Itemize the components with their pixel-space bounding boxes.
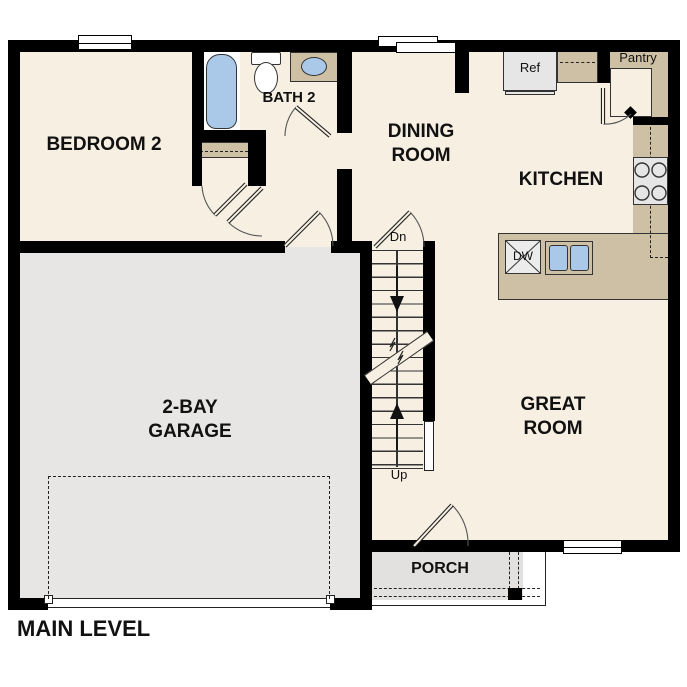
wall-bath-dining-lower — [337, 169, 352, 241]
wall-garage-top-left — [8, 241, 285, 253]
kitchen-sink-basin-right — [570, 245, 589, 271]
window-greatroom — [563, 540, 622, 554]
plan-title: MAIN LEVEL — [17, 615, 237, 643]
stairs-down-label: Dn — [383, 229, 413, 244]
pantry-right-shelf — [652, 68, 668, 117]
ref-label: Ref — [503, 60, 557, 75]
wall-pantry-bottom — [633, 117, 680, 125]
window-bedroom — [78, 35, 132, 50]
wall-ref-pantry-stub — [598, 40, 610, 83]
kitchen-label: KITCHEN — [501, 168, 621, 192]
porch-label: PORCH — [404, 559, 476, 579]
wall-garage-bottom-right — [330, 598, 372, 610]
porch-post — [508, 588, 522, 600]
closet-shelf — [198, 142, 250, 158]
kitchen-sink-basin-left — [549, 245, 568, 271]
wall-bath-dining-upper — [337, 40, 352, 133]
stove — [633, 157, 668, 205]
vanity-sink — [301, 57, 327, 76]
stair-railing — [424, 421, 434, 471]
wall-closet-left — [192, 142, 202, 186]
closet-rod-dash — [200, 151, 248, 152]
wall-bedroom-bath — [192, 40, 204, 142]
wall-garage-right — [360, 241, 372, 610]
refrigerator-handle — [505, 91, 555, 95]
wall-dining-kitchen-stub — [455, 40, 469, 93]
cabinet-door-dash — [560, 62, 595, 63]
wall-garage-bottom-left — [8, 598, 48, 610]
window-dining-b — [396, 42, 456, 53]
upper-cabinet-dash-end — [650, 257, 668, 258]
wall-left — [8, 40, 20, 610]
bath2-label: BATH 2 — [248, 89, 330, 108]
porch-dash-right-1 — [509, 552, 510, 589]
porch-dash-right-2 — [518, 552, 519, 589]
garage-door-dashed-area — [48, 476, 330, 599]
bedroom2-label: BEDROOM 2 — [29, 133, 179, 157]
stairs-up-label: Up — [384, 467, 414, 482]
pantry-label: Pantry — [610, 50, 666, 65]
floor-plan: BEDROOM 2 BATH 2 DINING ROOM KITCHEN GRE… — [0, 0, 687, 687]
wall-tubniche-bottom — [192, 130, 252, 142]
garage-door-sill — [48, 598, 330, 608]
garage-label: 2-BAY GARAGE — [135, 396, 245, 444]
wall-closet-right — [248, 130, 266, 186]
dining-label: DINING ROOM — [376, 120, 466, 168]
greatroom-label: GREAT ROOM — [508, 393, 598, 441]
dw-label: DW — [505, 249, 541, 263]
wall-greatroom-bottom — [360, 540, 680, 552]
bathtub — [206, 54, 237, 129]
